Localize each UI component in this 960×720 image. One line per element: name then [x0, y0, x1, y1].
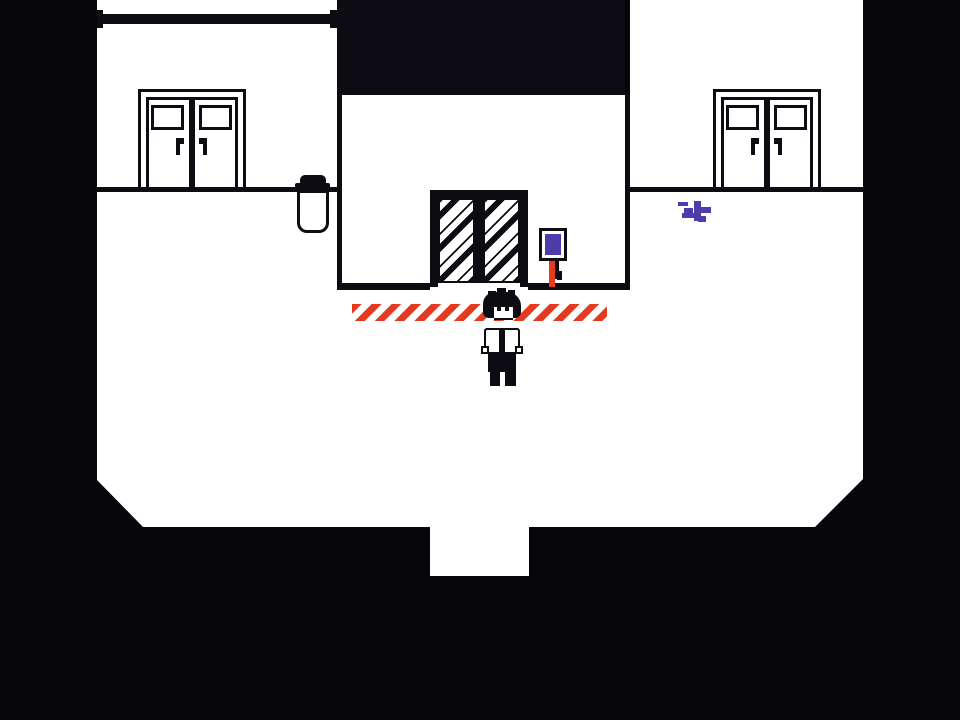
- door-window-right: [774, 105, 807, 130]
- player-tie: [499, 330, 505, 352]
- player-hair-fringe: [505, 307, 509, 311]
- player-character: [481, 288, 523, 388]
- alcove-wall-west: [337, 95, 342, 290]
- trash-can-body: [297, 190, 329, 233]
- elevator-frame-left: [430, 190, 438, 287]
- double-door-east: [713, 89, 821, 192]
- elevator-door: [430, 190, 528, 287]
- paint-splatter: [678, 199, 712, 224]
- hallway-joint-cap-east: [330, 10, 337, 28]
- door-handle-left-grip: [755, 138, 759, 144]
- double-door-west: [138, 89, 246, 192]
- splatter-blob: [678, 202, 688, 206]
- player-pants: [488, 352, 516, 372]
- splatter-blob: [698, 216, 706, 222]
- player-leg-left: [490, 372, 500, 386]
- trash-can: [295, 174, 331, 234]
- elevator-divider: [475, 198, 483, 283]
- door-handle-right: [203, 138, 207, 155]
- elevator-frame-top: [430, 190, 528, 198]
- elevator-frame-right: [520, 190, 528, 287]
- door-center-divider: [189, 97, 195, 187]
- door-handle-left-grip: [180, 138, 184, 144]
- door-handle-right: [778, 138, 782, 155]
- door-window-right: [199, 105, 232, 130]
- alcove-wall-south-west-segment: [337, 283, 430, 290]
- player-leg-right: [505, 372, 516, 386]
- elevator-panel-left: [438, 198, 475, 283]
- splatter-blob: [701, 207, 711, 213]
- door-window-left: [151, 105, 184, 130]
- game-viewport[interactable]: [0, 0, 960, 720]
- wall-sign-face: [545, 234, 561, 255]
- player-hair-fringe: [497, 307, 501, 311]
- wall-sign: [539, 228, 567, 261]
- hazard-stripes: [352, 304, 607, 321]
- north-center-wall-block: [337, 0, 625, 95]
- hallway-joint-cap-west: [97, 10, 103, 28]
- alcove-wall-south-east-segment: [528, 283, 630, 290]
- door-window-left: [726, 105, 759, 130]
- hallway-wall-joint: [97, 14, 337, 24]
- door-center-divider: [764, 97, 770, 187]
- trash-can-lid-rim: [295, 183, 330, 190]
- alcove-wall-east: [625, 95, 630, 290]
- player-hand-right: [515, 346, 523, 354]
- sign-post-shadow-foot: [557, 271, 562, 280]
- elevator-panel-right: [483, 198, 520, 283]
